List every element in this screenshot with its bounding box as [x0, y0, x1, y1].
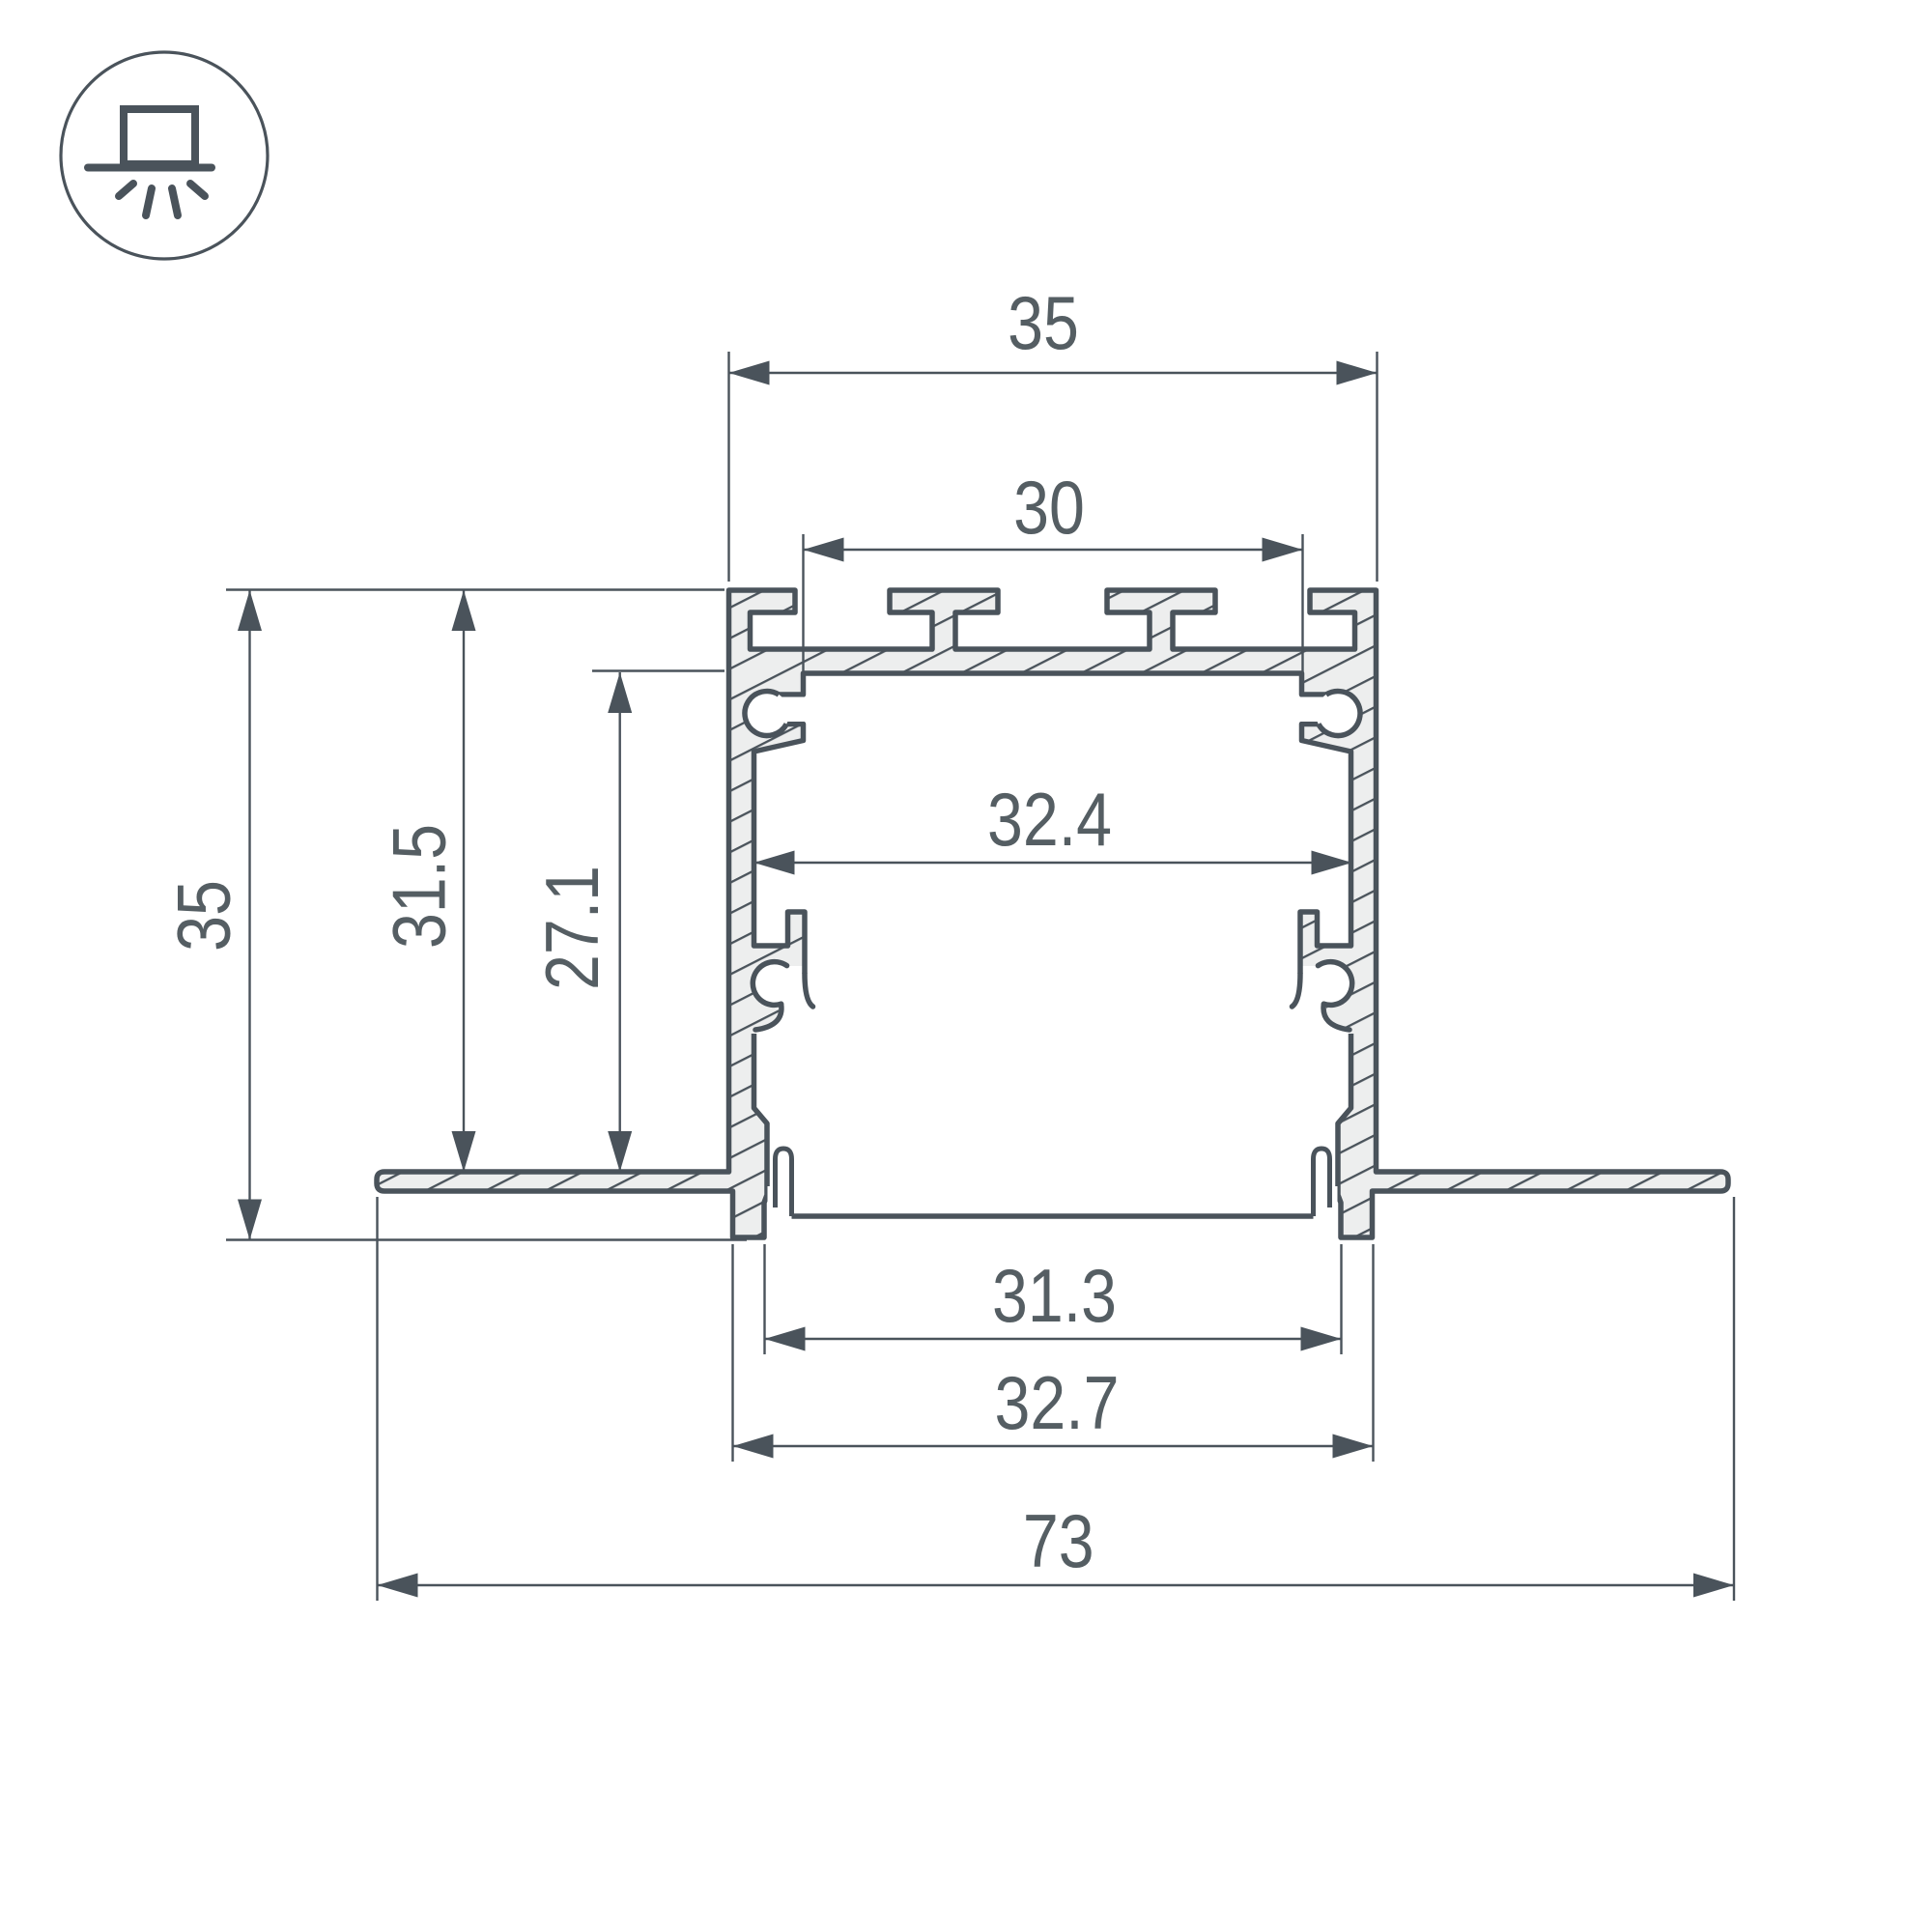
svg-text:27.1: 27.1: [530, 866, 614, 990]
svg-text:31.5: 31.5: [378, 824, 462, 949]
svg-text:73: 73: [1023, 1499, 1094, 1583]
svg-text:35: 35: [1008, 281, 1079, 365]
svg-text:35: 35: [161, 880, 245, 952]
svg-text:32.7: 32.7: [994, 1361, 1119, 1445]
svg-text:30: 30: [1013, 466, 1085, 550]
svg-text:31.3: 31.3: [992, 1254, 1117, 1338]
svg-text:32.4: 32.4: [987, 778, 1112, 862]
